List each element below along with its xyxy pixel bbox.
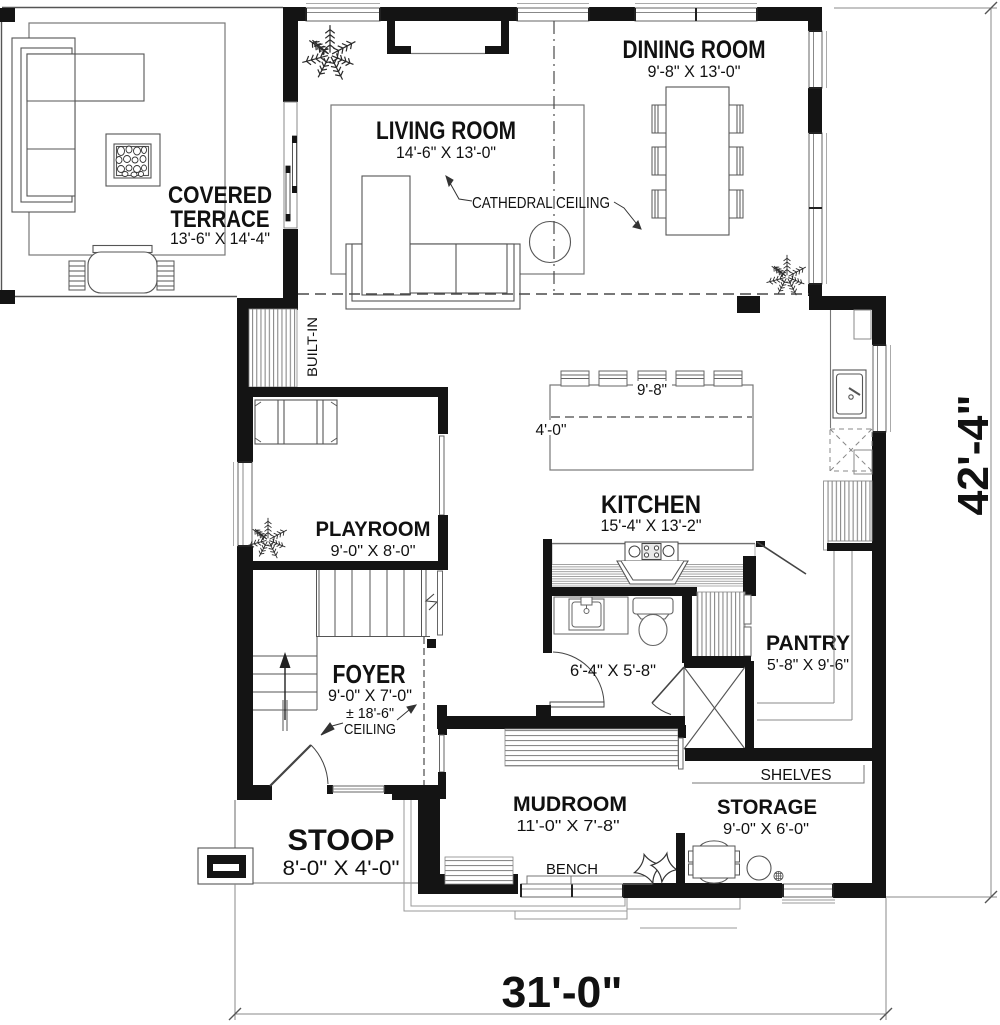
svg-text:CATHEDRAL CEILING: CATHEDRAL CEILING <box>472 195 610 212</box>
svg-text:PANTRY: PANTRY <box>766 632 850 655</box>
svg-text:COVERED: COVERED <box>168 182 272 209</box>
svg-text:± 18'-6": ± 18'-6" <box>346 706 394 722</box>
svg-text:CEILING: CEILING <box>344 722 396 738</box>
svg-text:STOOP: STOOP <box>288 824 395 857</box>
svg-text:13'-6" X 14'-4": 13'-6" X 14'-4" <box>170 230 270 248</box>
svg-text:11'-0" X 7'-8": 11'-0" X 7'-8" <box>517 818 620 835</box>
svg-text:9'-8": 9'-8" <box>637 382 667 399</box>
svg-text:42'-4": 42'-4" <box>949 395 998 516</box>
svg-text:KITCHEN: KITCHEN <box>601 491 701 519</box>
svg-text:9'-8" X 13'-0": 9'-8" X 13'-0" <box>648 62 741 81</box>
svg-text:9'-0" X 8'-0": 9'-0" X 8'-0" <box>331 543 416 560</box>
svg-text:14'-6" X 13'-0": 14'-6" X 13'-0" <box>396 143 496 162</box>
svg-text:8'-0" X 4'-0": 8'-0" X 4'-0" <box>283 857 400 880</box>
svg-text:15'-4" X 13'-2": 15'-4" X 13'-2" <box>601 516 702 535</box>
svg-text:TERRACE: TERRACE <box>171 206 270 233</box>
svg-text:9'-0" X 7'-0": 9'-0" X 7'-0" <box>328 687 412 705</box>
svg-text:9'-0" X 6'-0": 9'-0" X 6'-0" <box>723 821 809 838</box>
svg-text:6'-4" X 5'-8": 6'-4" X 5'-8" <box>570 661 656 680</box>
svg-text:STORAGE: STORAGE <box>717 796 817 819</box>
svg-text:PLAYROOM: PLAYROOM <box>316 518 431 541</box>
svg-text:BUILT-IN: BUILT-IN <box>304 317 320 377</box>
svg-text:SHELVES: SHELVES <box>761 767 832 784</box>
svg-text:FOYER: FOYER <box>333 659 406 689</box>
svg-text:4'-0": 4'-0" <box>536 422 567 439</box>
svg-text:BENCH: BENCH <box>546 861 598 878</box>
svg-text:DINING ROOM: DINING ROOM <box>623 36 766 64</box>
svg-text:31'-0": 31'-0" <box>502 968 623 1017</box>
svg-text:MUDROOM: MUDROOM <box>513 793 627 816</box>
svg-text:LIVING ROOM: LIVING ROOM <box>376 117 516 145</box>
svg-text:5'-8" X 9'-6": 5'-8" X 9'-6" <box>767 657 849 674</box>
